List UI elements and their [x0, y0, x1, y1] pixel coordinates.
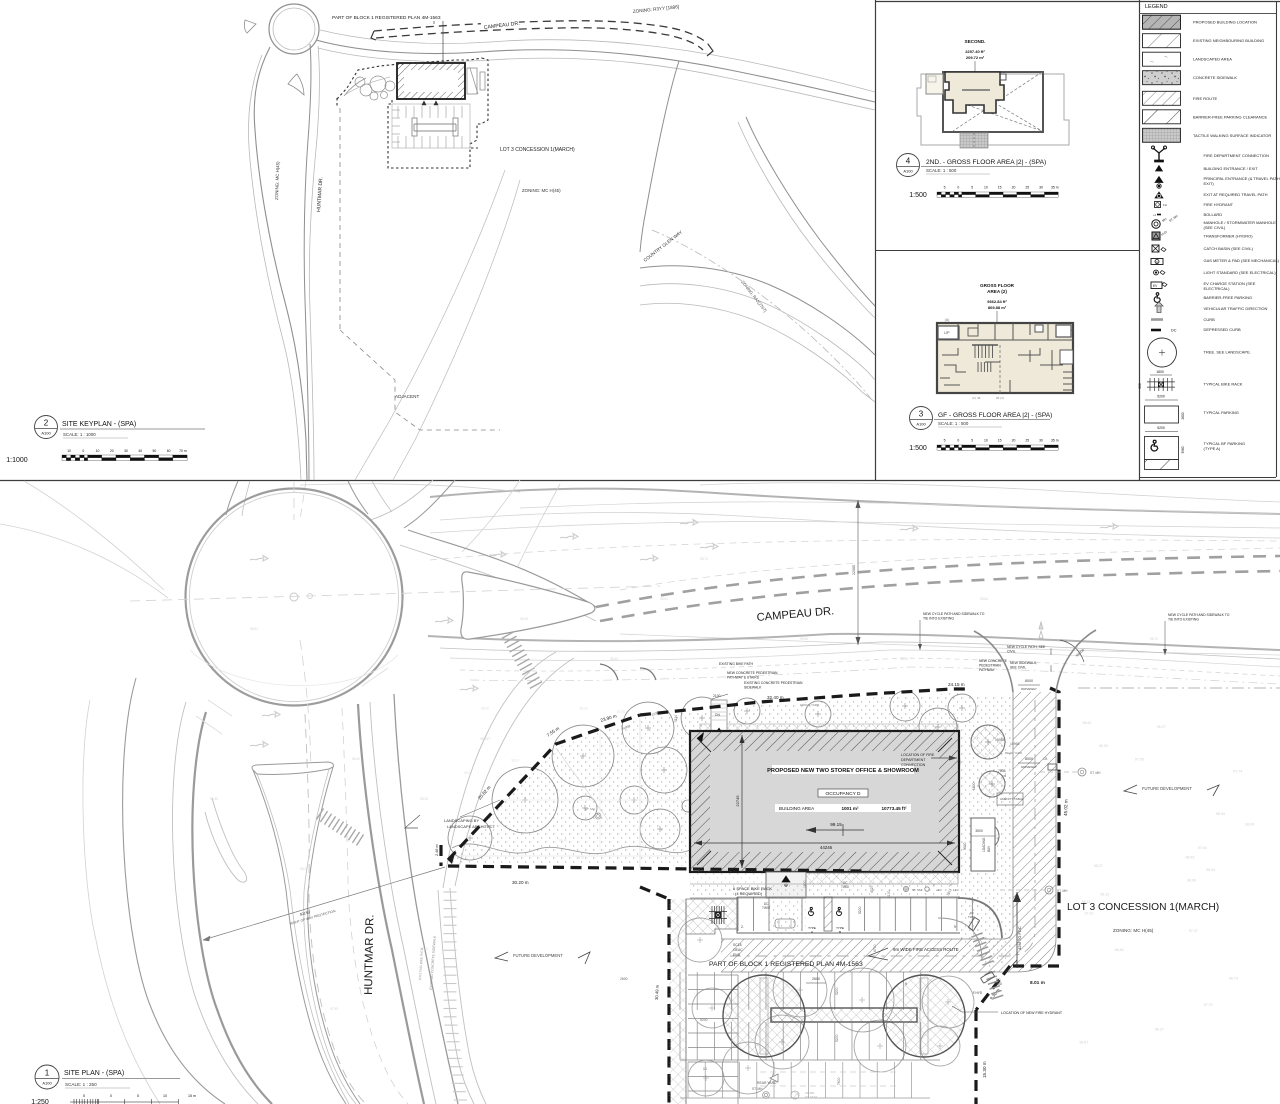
- svg-text:TRANSFORMER (HYDRO): TRANSFORMER (HYDRO): [1204, 234, 1254, 239]
- svg-text:15965: 15965: [995, 738, 1005, 742]
- svg-text:98.52: 98.52: [250, 627, 258, 631]
- svg-text:(TYPE A): (TYPE A): [1204, 446, 1221, 451]
- svg-text:10: 10: [96, 449, 100, 453]
- svg-text:98.01: 98.01: [511, 759, 519, 763]
- svg-text:VEHICULAR TRAFFIC DIRECTION: VEHICULAR TRAFFIC DIRECTION: [1204, 306, 1268, 311]
- svg-text:98.58: 98.58: [800, 637, 808, 641]
- svg-text:15 m: 15 m: [188, 1094, 196, 1098]
- svg-text:98.30: 98.30: [210, 797, 218, 801]
- svg-text:5200: 5200: [835, 1034, 839, 1042]
- svg-text:TYPICAL BIKE RACK: TYPICAL BIKE RACK: [1204, 382, 1243, 387]
- svg-text:PART OF BLOCK 1 REGISTERED PLA: PART OF BLOCK 1 REGISTERED PLAN 4M-1563: [709, 961, 863, 968]
- svg-text:96.27: 96.27: [1157, 725, 1166, 729]
- svg-text:SC18: SC18: [733, 943, 742, 947]
- svg-text:97.64: 97.64: [1198, 846, 1207, 850]
- svg-text:30: 30: [124, 449, 128, 453]
- svg-text:98.35: 98.35: [420, 797, 428, 801]
- svg-text:+EV: +EV: [953, 888, 959, 892]
- svg-text:98.09: 98.09: [1245, 822, 1254, 826]
- svg-text:DRIVEWAY: DRIVEWAY: [1021, 687, 1037, 691]
- svg-text:0: 0: [957, 439, 959, 443]
- svg-text:97.25: 97.25: [616, 742, 624, 746]
- svg-text:BUILDING AREA: BUILDING AREA: [779, 806, 815, 811]
- svg-text:5200: 5200: [1157, 426, 1165, 430]
- svg-text:ZONING: MC H(45): ZONING: MC H(45): [1113, 928, 1154, 933]
- svg-text:PROPOSED NEW TWO STOREY OFFICE: PROPOSED NEW TWO STOREY OFFICE & SHOWROO…: [767, 768, 919, 774]
- svg-text:LOT 3 CONCESSION 1(MARCH): LOT 3 CONCESSION 1(MARCH): [500, 147, 575, 153]
- svg-text:869.88 m²: 869.88 m²: [988, 305, 1007, 310]
- svg-text:CONNECTION: CONNECTION: [901, 763, 926, 767]
- svg-text:EXIT): EXIT): [1204, 181, 1215, 186]
- svg-text:98.70: 98.70: [1150, 637, 1158, 641]
- svg-text:98.27: 98.27: [1094, 864, 1103, 868]
- svg-text:97.35: 97.35: [617, 710, 625, 714]
- svg-text:FH: FH: [1163, 203, 1167, 207]
- svg-text:EXISTING BIKE PATH: EXISTING BIKE PATH: [719, 662, 754, 666]
- svg-text:209.72 m²: 209.72 m²: [966, 55, 985, 60]
- svg-text:PRINCIPAL ENTRANCE (& TRAVEL: PRINCIPAL ENTRANCE (& TRAVEL PATH: [1204, 176, 1280, 181]
- svg-text:2.: 2.: [741, 925, 744, 929]
- svg-text:3: 3: [919, 410, 924, 419]
- svg-text:1:500: 1:500: [909, 445, 927, 452]
- svg-text:FRONT YARD: FRONT YARD: [800, 703, 820, 707]
- svg-text:99.15: 99.15: [830, 822, 842, 827]
- svg-text:15.30 m: 15.30 m: [982, 1061, 987, 1078]
- svg-text:2: 2: [44, 419, 49, 428]
- svg-text:NEW CYCLE PATH, SEE: NEW CYCLE PATH, SEE: [1007, 645, 1046, 649]
- svg-text:PEDESTRIAN: PEDESTRIAN: [979, 664, 1001, 668]
- svg-text:2600: 2600: [812, 977, 820, 981]
- svg-text:B: B: [839, 930, 841, 934]
- svg-text:OCCUPANCY D: OCCUPANCY D: [825, 791, 861, 797]
- svg-text:32.40 m: 32.40 m: [767, 695, 784, 700]
- svg-text:98.10: 98.10: [580, 707, 588, 711]
- svg-text:+EV: +EV: [936, 888, 942, 892]
- svg-text:20: 20: [1012, 439, 1016, 443]
- svg-text:10: 10: [984, 439, 988, 443]
- svg-text:LIGHT STANDARD (SEE ELECTRICAL: LIGHT STANDARD (SEE ELECTRICAL): [1204, 270, 1277, 275]
- svg-text:96.93: 96.93: [1099, 744, 1108, 748]
- svg-text:98.40: 98.40: [352, 757, 360, 761]
- svg-text:PATHWAY: PATHWAY: [979, 668, 996, 672]
- svg-text:ST. MH: ST. MH: [1057, 889, 1068, 893]
- svg-text:ZONING: MC H(45): ZONING: MC H(45): [522, 188, 561, 193]
- svg-text:4327: 4327: [870, 885, 874, 893]
- svg-text:98.66: 98.66: [980, 597, 988, 601]
- svg-text:98.46: 98.46: [559, 838, 567, 842]
- svg-text:98.47: 98.47: [576, 856, 584, 860]
- svg-text:15: 15: [998, 439, 1002, 443]
- svg-text:5: 5: [137, 1094, 139, 1098]
- svg-text:70 m: 70 m: [179, 449, 187, 453]
- svg-text:20: 20: [1012, 186, 1016, 190]
- svg-text:OEAC: OEAC: [733, 948, 743, 952]
- svg-text:NEW CYCLE PATH AND SIDEWALK TO: NEW CYCLE PATH AND SIDEWALK TO: [1168, 613, 1230, 617]
- svg-text:SCALE: 1 : 250: SCALE: 1 : 250: [65, 1082, 97, 1087]
- svg-text:FIRE HYDRANT: FIRE HYDRANT: [1204, 202, 1234, 207]
- svg-text:99 (3): 99 (3): [996, 396, 1004, 400]
- svg-text:30.49 m: 30.49 m: [654, 984, 660, 1000]
- svg-text:35 m: 35 m: [1051, 186, 1059, 190]
- svg-text:CB: CB: [1002, 774, 1006, 778]
- svg-text:24.15 m: 24.15 m: [948, 682, 965, 687]
- svg-text:SIDEWALK: SIDEWALK: [744, 686, 762, 690]
- svg-text:LEGEND: LEGEND: [1145, 4, 1168, 10]
- svg-text:9: 9: [905, 982, 907, 986]
- svg-text:35 m: 35 m: [1051, 439, 1059, 443]
- svg-text:BAY: BAY: [987, 845, 991, 852]
- svg-text:2257.40 ft²: 2257.40 ft²: [965, 49, 985, 54]
- svg-text:4114: 4114: [674, 715, 678, 722]
- svg-text:98.94: 98.94: [1216, 812, 1225, 816]
- svg-text:98.55: 98.55: [900, 657, 908, 661]
- svg-text:96.94: 96.94: [1206, 868, 1215, 872]
- svg-text:1: 1: [45, 1069, 50, 1078]
- svg-text:5200: 5200: [858, 906, 862, 914]
- svg-text:22745: 22745: [735, 795, 740, 807]
- svg-text:BOLLARD: BOLLARD: [1204, 212, 1223, 217]
- svg-text:3960: 3960: [1181, 446, 1185, 453]
- svg-text:REAR YARD: REAR YARD: [1005, 751, 1023, 755]
- svg-text:ST. MH: ST. MH: [912, 888, 922, 892]
- svg-text:BUILDING ENTRANCE / EXIT: BUILDING ENTRANCE / EXIT: [1204, 166, 1259, 171]
- svg-text:97.37: 97.37: [1189, 929, 1198, 933]
- svg-text:CATCH BASIN (SEE CIVIL): CATCH BASIN (SEE CIVIL): [1204, 246, 1254, 251]
- svg-text:A100: A100: [42, 1081, 52, 1086]
- svg-text:DEPARTMENT: DEPARTMENT: [901, 758, 926, 762]
- svg-text:GAS METER & PAD (SEE MECHANICA: GAS METER & PAD (SEE MECHANICAL): [1204, 258, 1280, 263]
- svg-text:SITE KEYPLAN - (SPA): SITE KEYPLAN - (SPA): [62, 421, 136, 428]
- svg-text:EXISTING NEIGHBOURING BUILDING: EXISTING NEIGHBOURING BUILDING: [1193, 38, 1264, 43]
- svg-text:2000: 2000: [1049, 648, 1053, 655]
- svg-text:TWSI: TWSI: [841, 885, 849, 889]
- svg-text:5: 5: [83, 1094, 85, 1098]
- svg-text:5: 5: [944, 186, 946, 190]
- svg-text:50: 50: [153, 449, 157, 453]
- svg-text:TIE INTO EXISTING: TIE INTO EXISTING: [1168, 618, 1199, 622]
- svg-text:42M TO FDC: 42M TO FDC: [1017, 926, 1022, 950]
- svg-text:END: END: [733, 953, 741, 957]
- svg-text:DN: DN: [715, 713, 720, 717]
- svg-text:UP: UP: [944, 330, 950, 335]
- svg-text:2600: 2600: [1181, 412, 1185, 419]
- svg-text:A100: A100: [41, 431, 51, 436]
- svg-text:ELECTRICAL): ELECTRICAL): [1204, 286, 1231, 291]
- svg-text:0: 0: [110, 1094, 112, 1098]
- svg-text:96.87: 96.87: [1079, 1040, 1088, 1044]
- svg-text:5: 5: [971, 186, 973, 190]
- svg-text:7600: 7600: [837, 1077, 841, 1085]
- svg-text:96.62: 96.62: [1083, 721, 1092, 725]
- svg-text:25: 25: [1025, 439, 1029, 443]
- svg-text:(C) 48: (C) 48: [972, 396, 981, 400]
- svg-text:TWSI: TWSI: [968, 915, 975, 919]
- svg-text:1:250: 1:250: [31, 1099, 49, 1104]
- svg-text:LOCATION OF FIRE: LOCATION OF FIRE: [901, 753, 935, 757]
- svg-text:FIRE ROUTE: FIRE ROUTE: [1193, 96, 1218, 101]
- svg-text:2.46 m: 2.46 m: [435, 844, 439, 856]
- svg-text:1800: 1800: [972, 782, 976, 790]
- svg-text:(SEE CIVIL): (SEE CIVIL): [1204, 225, 1226, 230]
- svg-text:97.42: 97.42: [611, 848, 619, 852]
- svg-text:DC: DC: [1171, 329, 1177, 333]
- svg-text:9: 9: [954, 925, 956, 929]
- svg-text:LOCATION OF NEW FIRE HYDRANT: LOCATION OF NEW FIRE HYDRANT: [1001, 1011, 1063, 1015]
- svg-text:96.11: 96.11: [1082, 900, 1091, 904]
- svg-text:30: 30: [1039, 439, 1043, 443]
- svg-text:AREA (2): AREA (2): [987, 289, 1007, 294]
- svg-text:SECOND.: SECOND.: [965, 39, 986, 44]
- svg-text:98.22: 98.22: [300, 867, 308, 871]
- svg-text:PROPOSED BUILDING LOCATION: PROPOSED BUILDING LOCATION: [1193, 20, 1257, 25]
- svg-text:TWSI: TWSI: [994, 982, 1002, 986]
- svg-text:8000: 8000: [1025, 757, 1033, 761]
- svg-text:98.72: 98.72: [700, 557, 708, 561]
- svg-text:ST. MH: ST. MH: [585, 807, 595, 811]
- svg-text:0: 0: [957, 186, 959, 190]
- svg-text:LANDSCAPE ARCHITECT: LANDSCAPE ARCHITECT: [447, 824, 496, 829]
- svg-text:10: 10: [984, 186, 988, 190]
- svg-text:96.12: 96.12: [1100, 893, 1109, 897]
- svg-text:NEW CONCRETE PEDESTRIAN: NEW CONCRETE PEDESTRIAN: [727, 671, 778, 675]
- svg-text:98.30: 98.30: [481, 706, 489, 710]
- svg-text:LANDSCAPING BY: LANDSCAPING BY: [444, 818, 479, 823]
- svg-text:40: 40: [138, 449, 142, 453]
- svg-text:98.63: 98.63: [1185, 907, 1194, 911]
- svg-text:GF - GROSS FLOOR AREA |2| - (S: GF - GROSS FLOOR AREA |2| - (SPA): [938, 412, 1052, 419]
- svg-text:5: 5: [971, 439, 973, 443]
- svg-text:CONCRETE SIDEWALK: CONCRETE SIDEWALK: [1193, 75, 1237, 80]
- svg-text:2600: 2600: [620, 977, 628, 981]
- svg-text:98.40: 98.40: [610, 657, 618, 661]
- svg-text:SEE CIVIL: SEE CIVIL: [1010, 666, 1026, 670]
- svg-text:10: 10: [163, 1094, 167, 1098]
- svg-text:EXIT AT REQUIRED TRAVEL PATH: EXIT AT REQUIRED TRAVEL PATH: [1204, 192, 1268, 197]
- svg-text:TACTILE WALKING SURFACE INDICA: TACTILE WALKING SURFACE INDICATOR: [1193, 133, 1271, 138]
- svg-text:600: 600: [1138, 383, 1142, 389]
- svg-text:LANDSCAPED AREA: LANDSCAPED AREA: [1193, 57, 1232, 62]
- svg-text:CB: CB: [1043, 757, 1047, 761]
- svg-text:22085: 22085: [852, 565, 856, 575]
- svg-text:LOADING: LOADING: [982, 837, 986, 852]
- svg-text:10: 10: [67, 449, 71, 453]
- svg-text:BARRIER-FREE PARKING: BARRIER-FREE PARKING: [1204, 295, 1253, 300]
- svg-text:1001 m²: 1001 m²: [841, 806, 859, 811]
- svg-text:98.49: 98.49: [520, 617, 528, 621]
- svg-text:SITE PLAN - (SPA): SITE PLAN - (SPA): [64, 1070, 124, 1077]
- svg-text:ST. MH: ST. MH: [752, 1087, 763, 1091]
- svg-text:15: 15: [998, 186, 1002, 190]
- svg-text:96.73: 96.73: [1229, 977, 1238, 981]
- svg-text:1800: 1800: [803, 880, 807, 888]
- svg-text:3500: 3500: [975, 829, 983, 833]
- svg-text:TO ST.M: TO ST.M: [805, 1095, 817, 1099]
- svg-text:8000: 8000: [1025, 679, 1033, 683]
- svg-text:(A): (A): [945, 318, 950, 322]
- svg-text:GROSS FLOOR: GROSS FLOOR: [980, 283, 1015, 288]
- svg-text:PATHWAY & STAIRS: PATHWAY & STAIRS: [727, 676, 760, 680]
- svg-text:2ND. - GROSS FLOOR AREA |2| -: 2ND. - GROSS FLOOR AREA |2| - (SPA): [926, 159, 1046, 166]
- svg-text:97.17: 97.17: [483, 737, 491, 741]
- svg-text:PART OF BLOCK 1 REGISTERED PLA: PART OF BLOCK 1 REGISTERED PLAN 4M-1563: [332, 15, 441, 21]
- svg-text:96.90: 96.90: [1187, 878, 1196, 882]
- svg-text:1800: 1800: [1156, 370, 1164, 374]
- svg-text:96.50: 96.50: [464, 771, 472, 775]
- svg-text:96.37: 96.37: [1155, 1028, 1164, 1032]
- svg-text:NEW CYCLE PATH AND SIDEWALK TO: NEW CYCLE PATH AND SIDEWALK TO: [923, 612, 985, 616]
- svg-text:BARRIER-FREE PARKING CLEARANCE: BARRIER-FREE PARKING CLEARANCE: [1193, 114, 1267, 119]
- svg-text:30.20 m: 30.20 m: [512, 880, 529, 885]
- svg-text:1:500: 1:500: [909, 192, 927, 199]
- svg-text:FUTURE DEVELOPMENT: FUTURE DEVELOPMENT: [1142, 786, 1192, 791]
- svg-text:(4 REQUIRED): (4 REQUIRED): [735, 891, 763, 896]
- svg-text:5200: 5200: [700, 1018, 708, 1022]
- svg-text:25: 25: [1025, 186, 1029, 190]
- svg-text:1:1000: 1:1000: [6, 457, 28, 464]
- svg-text:10773.45 ft²: 10773.45 ft²: [881, 806, 906, 811]
- svg-text:0: 0: [82, 449, 84, 453]
- svg-text:9m WIDE FIRE ACCESS ROUTE: 9m WIDE FIRE ACCESS ROUTE: [893, 947, 959, 952]
- svg-text:NEW SIDEWALK,: NEW SIDEWALK,: [1010, 661, 1037, 665]
- svg-text:A100: A100: [916, 422, 926, 427]
- svg-text:FUTURE DEVELOPMENT: FUTURE DEVELOPMENT: [513, 953, 563, 958]
- svg-text:45.02 m: 45.02 m: [1063, 799, 1069, 816]
- svg-text:97.95: 97.95: [1135, 757, 1144, 761]
- svg-text:CIVIL: CIVIL: [1007, 650, 1016, 654]
- svg-text:FIRE DEPARTMENT CONNECTION: FIRE DEPARTMENT CONNECTION: [1204, 153, 1269, 158]
- svg-text:20: 20: [110, 449, 114, 453]
- svg-text:60: 60: [167, 449, 171, 453]
- svg-text:A100: A100: [903, 169, 913, 174]
- svg-text:EXISTING CONCRETE PEDESTRIAN: EXISTING CONCRETE PEDESTRIAN: [744, 681, 803, 685]
- svg-text:REAR YARD: REAR YARD: [757, 1081, 777, 1085]
- svg-text:2000: 2000: [1049, 665, 1053, 672]
- svg-text:ST. MH: ST. MH: [1090, 771, 1101, 775]
- svg-text:TIE INTO EXISTING: TIE INTO EXISTING: [923, 617, 954, 621]
- svg-text:F.HYD: F.HYD: [973, 991, 983, 995]
- svg-text:TYPICAL PARKING: TYPICAL PARKING: [1204, 410, 1239, 415]
- svg-text:98.93: 98.93: [1185, 856, 1194, 860]
- svg-text:TREE. SEE LANDSCAPE.: TREE. SEE LANDSCAPE.: [1204, 350, 1251, 355]
- svg-text:5: 5: [944, 439, 946, 443]
- svg-text:98.61: 98.61: [660, 597, 668, 601]
- svg-text:9362.84 ft²: 9362.84 ft²: [987, 299, 1007, 304]
- svg-text:97.72: 97.72: [1204, 1003, 1213, 1007]
- svg-text:A: A: [811, 930, 813, 934]
- svg-text:DRIVEWAY: DRIVEWAY: [1021, 765, 1037, 769]
- svg-text:97.10: 97.10: [1084, 911, 1093, 915]
- svg-text:5200: 5200: [1157, 395, 1165, 399]
- svg-text:5200: 5200: [835, 987, 839, 995]
- svg-text:HUNTMAR DR.: HUNTMAR DR.: [363, 914, 376, 995]
- svg-text:97.95: 97.95: [330, 1007, 338, 1011]
- svg-text:SCALE: 1 : 1000: SCALE: 1 : 1000: [63, 432, 96, 437]
- svg-text:10965: 10965: [1010, 742, 1020, 746]
- svg-text:4: 4: [906, 157, 911, 166]
- svg-text:8.01 m: 8.01 m: [1030, 980, 1045, 986]
- svg-text:44246: 44246: [820, 845, 833, 850]
- svg-text:98.84: 98.84: [1115, 948, 1124, 952]
- svg-text:SCALE: 1 : 500: SCALE: 1 : 500: [938, 421, 969, 426]
- svg-text:AMENITY TABLE: AMENITY TABLE: [1000, 797, 1023, 801]
- svg-text:9000: 9000: [963, 842, 967, 850]
- svg-text:DEPRESSED CURB: DEPRESSED CURB: [1204, 327, 1241, 332]
- svg-text:7836: 7836: [998, 769, 1006, 773]
- svg-text:CURB: CURB: [1204, 317, 1216, 322]
- svg-text:6700: 6700: [873, 944, 877, 952]
- svg-text:2100: 2100: [887, 890, 891, 898]
- svg-text:SCALE: 1 : 500: SCALE: 1 : 500: [926, 168, 957, 173]
- svg-text:30: 30: [1039, 186, 1043, 190]
- svg-text:97.74: 97.74: [1233, 769, 1242, 773]
- svg-text:ADJACENT: ADJACENT: [395, 394, 419, 399]
